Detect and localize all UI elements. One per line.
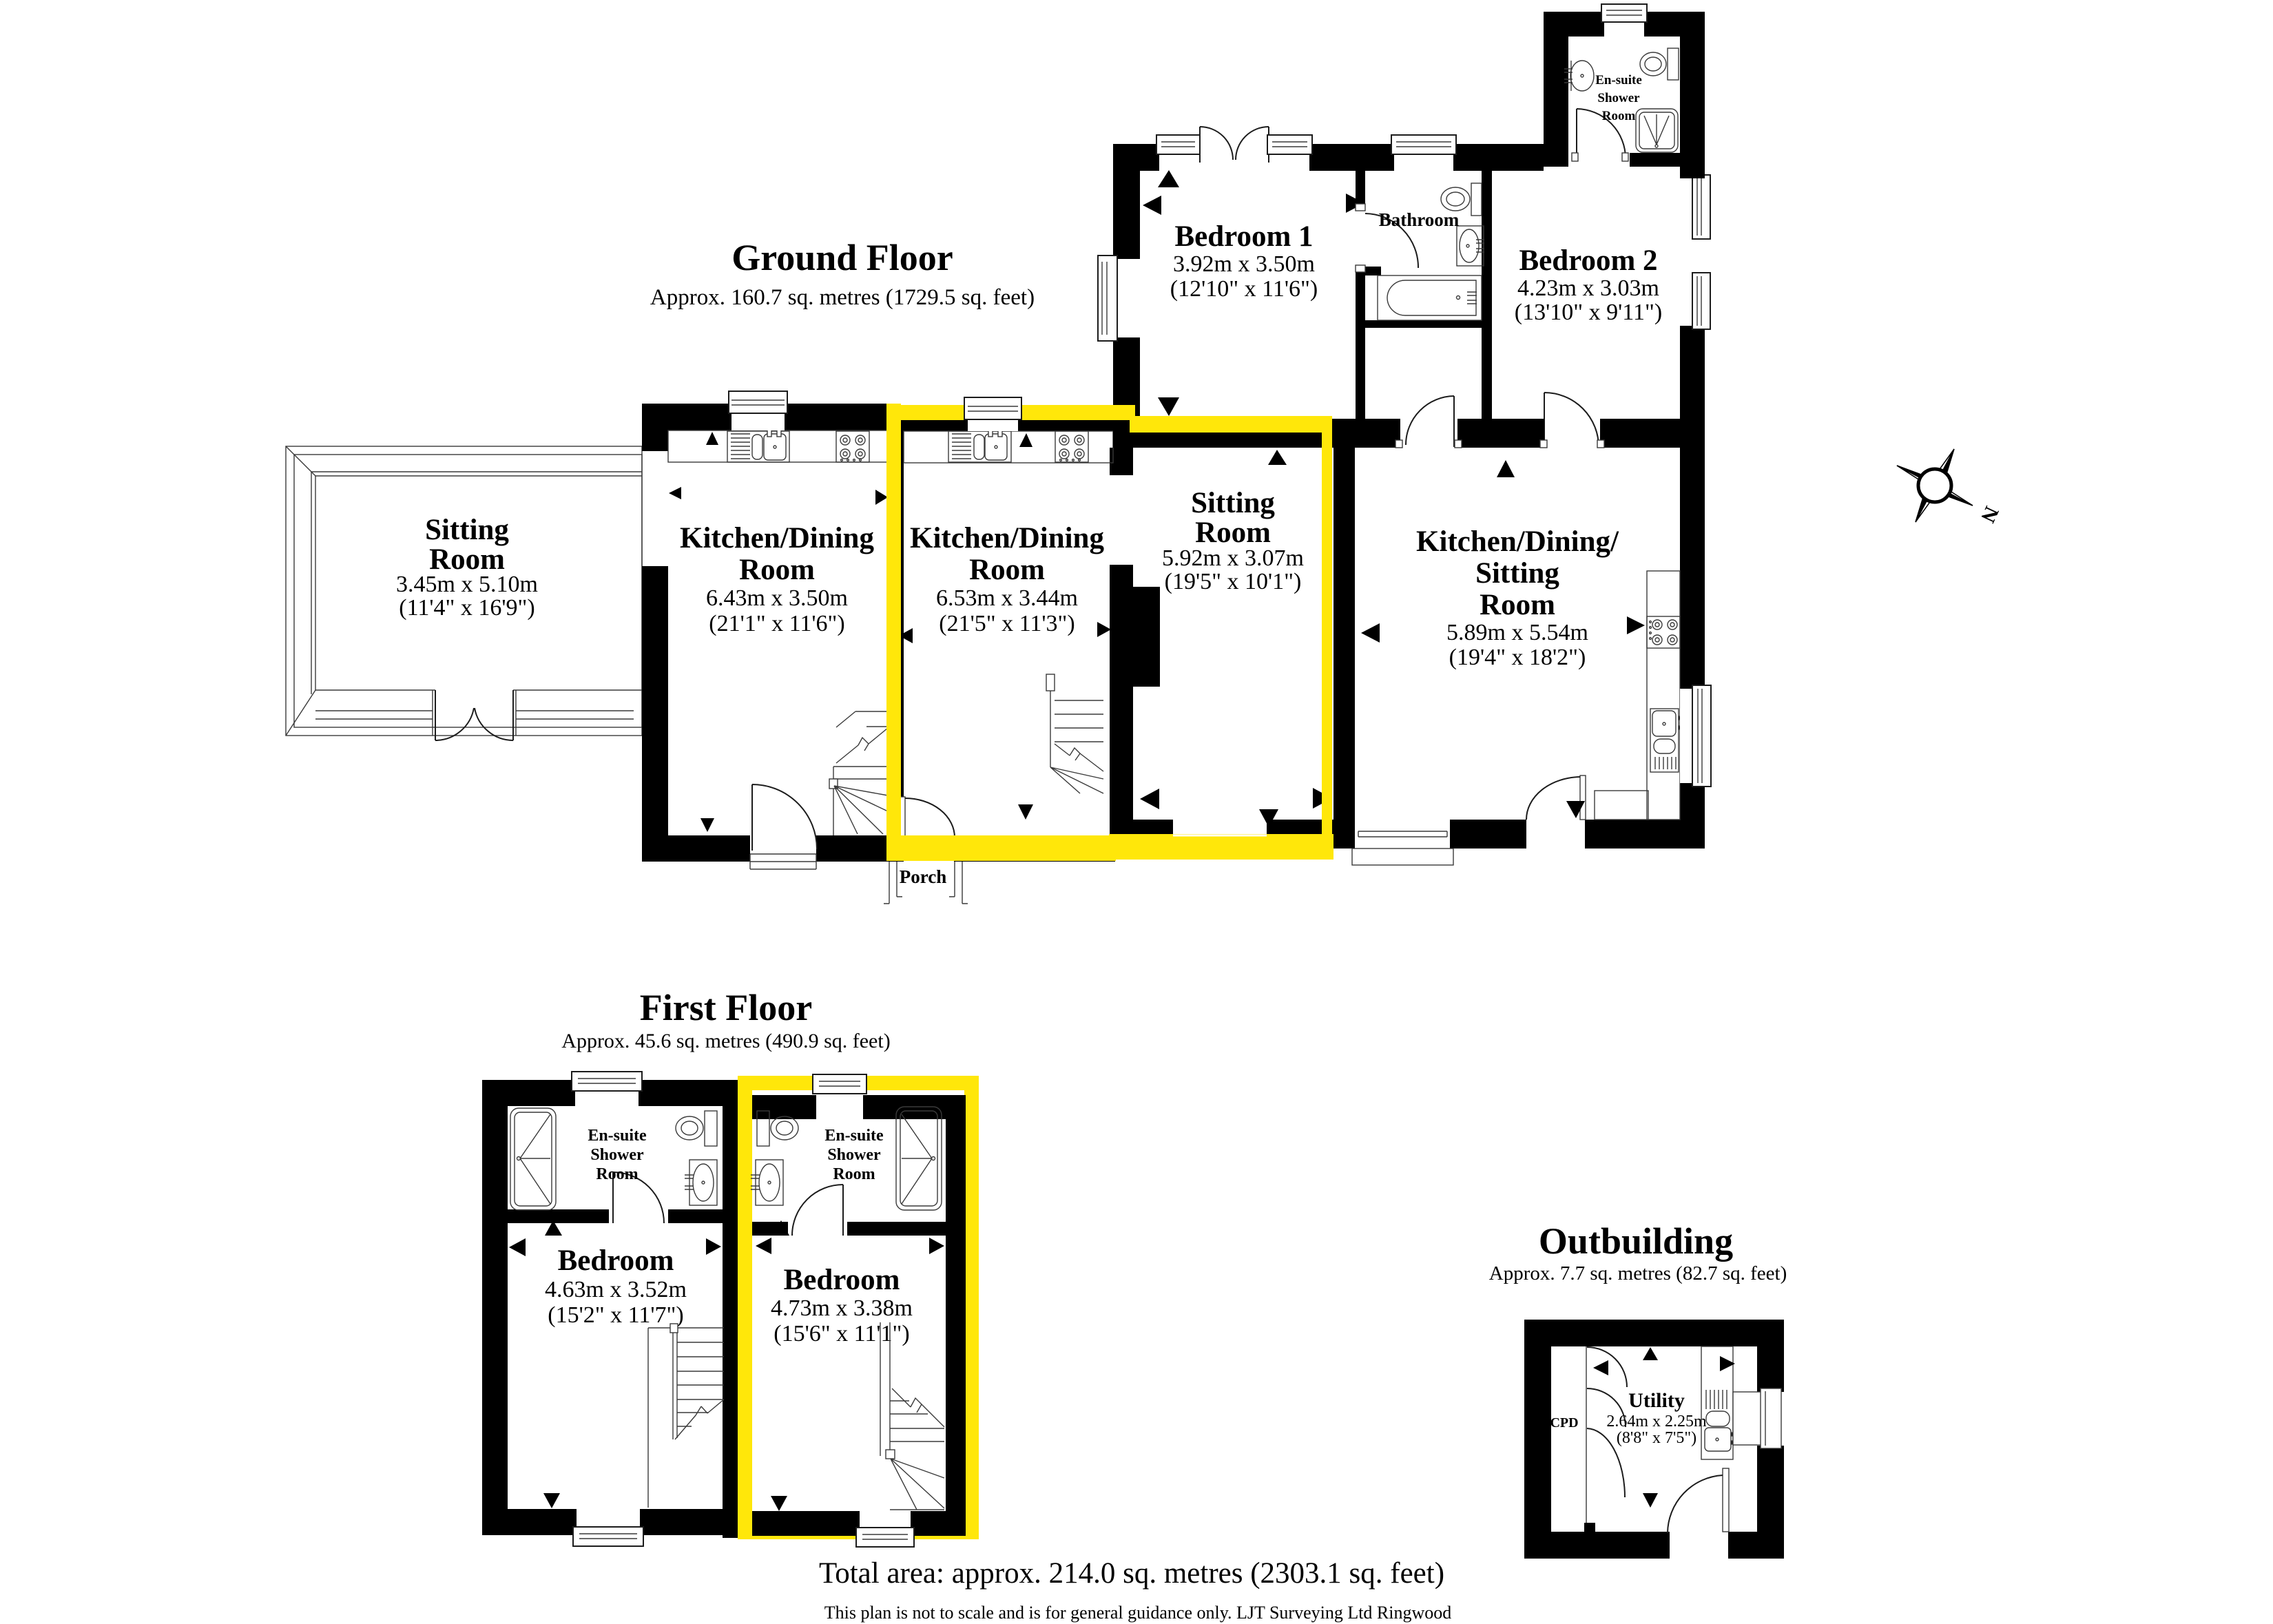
svg-text:Room: Room bbox=[833, 1165, 875, 1183]
svg-text:(8'8" x 7'5"): (8'8" x 7'5") bbox=[1617, 1429, 1696, 1447]
svg-text:Ground Floor: Ground Floor bbox=[731, 237, 953, 278]
svg-text:4.23m x 3.03m: 4.23m x 3.03m bbox=[1517, 275, 1659, 301]
svg-text:Room: Room bbox=[1480, 589, 1555, 621]
svg-text:Room: Room bbox=[596, 1165, 638, 1183]
svg-text:Kitchen/Dining: Kitchen/Dining bbox=[910, 522, 1104, 554]
svg-text:6.43m x 3.50m: 6.43m x 3.50m bbox=[706, 585, 848, 611]
svg-text:Sitting: Sitting bbox=[1475, 557, 1559, 590]
svg-text:Total area: approx. 214.0 sq.: Total area: approx. 214.0 sq. metres (23… bbox=[819, 1557, 1444, 1590]
svg-text:Bedroom: Bedroom bbox=[784, 1264, 900, 1296]
svg-text:4.73m x 3.38m: 4.73m x 3.38m bbox=[771, 1295, 913, 1321]
svg-text:Approx. 160.7 sq. metres (1729: Approx. 160.7 sq. metres (1729.5 sq. fee… bbox=[650, 285, 1035, 310]
svg-text:2.64m x 2.25m: 2.64m x 2.25m bbox=[1606, 1413, 1707, 1430]
svg-text:En-suite: En-suite bbox=[824, 1127, 884, 1145]
svg-text:Shower: Shower bbox=[1597, 91, 1640, 105]
svg-text:(15'2" x 11'7"): (15'2" x 11'7") bbox=[548, 1302, 683, 1328]
svg-text:3.92m x 3.50m: 3.92m x 3.50m bbox=[1173, 251, 1315, 277]
svg-text:Bathroom: Bathroom bbox=[1379, 209, 1460, 230]
svg-text:4.63m x 3.52m: 4.63m x 3.52m bbox=[545, 1277, 687, 1302]
svg-text:Shower: Shower bbox=[590, 1146, 644, 1164]
svg-text:Bedroom: Bedroom bbox=[558, 1245, 674, 1277]
svg-text:Sitting: Sitting bbox=[1191, 487, 1275, 519]
svg-text:(21'5" x 11'3"): (21'5" x 11'3") bbox=[939, 611, 1075, 636]
svg-text:6.53m x 3.44m: 6.53m x 3.44m bbox=[936, 585, 1078, 611]
svg-text:Porch: Porch bbox=[900, 866, 947, 887]
svg-text:Bedroom 1: Bedroom 1 bbox=[1174, 220, 1313, 253]
svg-text:Sitting: Sitting bbox=[425, 514, 509, 546]
svg-text:(19'5" x 10'1"): (19'5" x 10'1") bbox=[1165, 569, 1302, 594]
svg-text:This plan is not to scale and: This plan is not to scale and is for gen… bbox=[824, 1603, 1452, 1623]
svg-text:Room: Room bbox=[1195, 517, 1271, 549]
svg-text:Approx. 45.6 sq. metres (490.9: Approx. 45.6 sq. metres (490.9 sq. feet) bbox=[561, 1030, 890, 1052]
svg-text:(13'10" x 9'11"): (13'10" x 9'11") bbox=[1515, 300, 1662, 325]
svg-text:Approx. 7.7 sq. metres (82.7 s: Approx. 7.7 sq. metres (82.7 sq. feet) bbox=[1489, 1262, 1787, 1284]
svg-text:Room: Room bbox=[429, 543, 505, 576]
svg-text:(11'4" x 16'9"): (11'4" x 16'9") bbox=[399, 595, 534, 621]
svg-text:Room: Room bbox=[1602, 109, 1636, 123]
svg-text:En-suite: En-suite bbox=[588, 1127, 647, 1145]
svg-text:Room: Room bbox=[739, 554, 815, 586]
svg-text:(19'4" x 18'2"): (19'4" x 18'2") bbox=[1449, 645, 1586, 670]
svg-text:First Floor: First Floor bbox=[640, 987, 812, 1028]
svg-text:5.92m x 3.07m: 5.92m x 3.07m bbox=[1162, 545, 1304, 571]
svg-text:Shower: Shower bbox=[827, 1146, 881, 1164]
svg-text:Kitchen/Dining/: Kitchen/Dining/ bbox=[1416, 525, 1619, 558]
svg-text:CPD: CPD bbox=[1550, 1415, 1578, 1430]
svg-text:(15'6" x 11'1"): (15'6" x 11'1") bbox=[774, 1321, 909, 1346]
svg-text:Outbuilding: Outbuilding bbox=[1539, 1220, 1733, 1262]
svg-text:En-suite: En-suite bbox=[1595, 73, 1642, 87]
svg-text:3.45m x 5.10m: 3.45m x 5.10m bbox=[396, 572, 538, 597]
svg-text:(12'10" x 11'6"): (12'10" x 11'6") bbox=[1170, 276, 1318, 302]
svg-text:Bedroom 2: Bedroom 2 bbox=[1519, 244, 1657, 277]
svg-text:Utility: Utility bbox=[1628, 1389, 1685, 1412]
svg-text:5.89m x 5.54m: 5.89m x 5.54m bbox=[1446, 620, 1588, 645]
svg-text:(21'1" x 11'6"): (21'1" x 11'6") bbox=[709, 611, 844, 636]
svg-text:Kitchen/Dining: Kitchen/Dining bbox=[680, 522, 874, 554]
svg-text:Room: Room bbox=[969, 554, 1045, 586]
